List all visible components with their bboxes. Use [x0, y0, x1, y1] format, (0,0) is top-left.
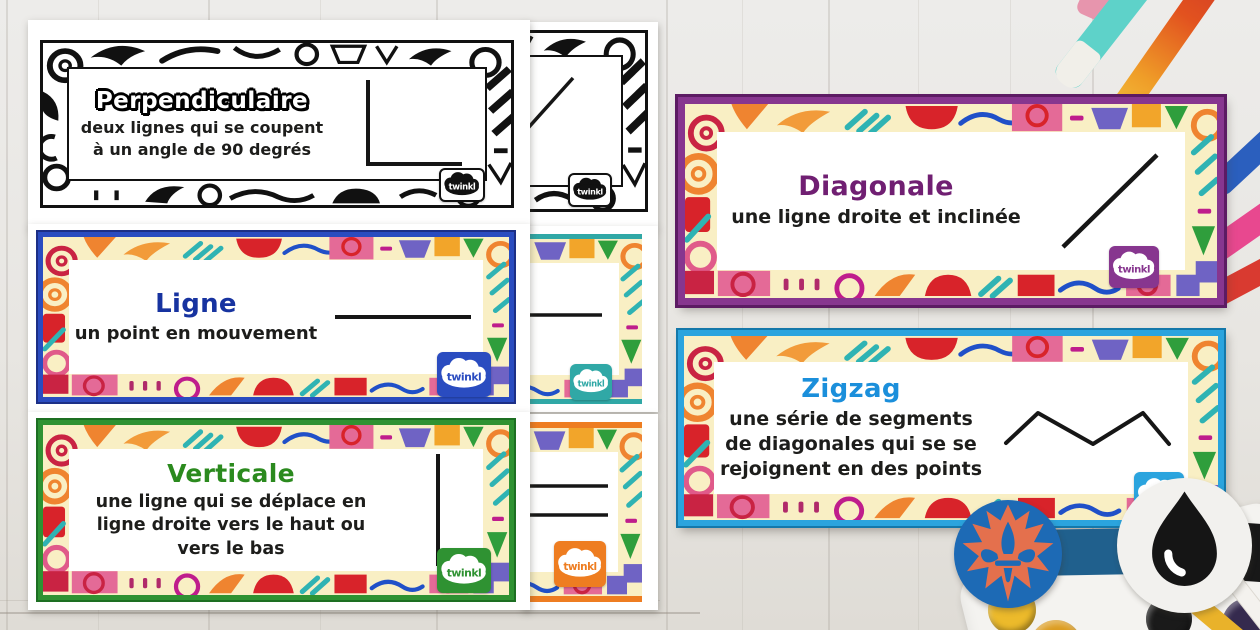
twinkl-logo-badge: twinkl — [437, 548, 491, 593]
svg-text:twinkl: twinkl — [577, 188, 603, 197]
partial-card-teal: twinkl — [530, 234, 642, 404]
card-description: un point en mouvement — [75, 322, 318, 346]
wood-grain-line — [918, 0, 919, 630]
twinkl-logo-badge: twinkl — [570, 364, 612, 400]
twinkl-logo-badge: twinkl — [439, 168, 485, 202]
shape-column — [323, 313, 483, 321]
zigzag-line-icon — [1001, 406, 1176, 450]
pen-cap — [1051, 38, 1103, 93]
shape-column — [988, 406, 1188, 450]
card-diagonale: Diagonale une ligne droite et inclinée t… — [678, 97, 1224, 305]
twinkl-logo-badge: twinkl — [1109, 246, 1159, 288]
card-perpendiculaire: Perpendiculaire deux lignes qui se coupe… — [40, 40, 514, 208]
twinkl-logo-badge: twinkl — [554, 541, 606, 587]
card-title: Diagonale — [798, 171, 953, 202]
ink-drop-icon — [1117, 478, 1252, 613]
card-ligne: Ligne un point en mouvement twinkl — [38, 232, 514, 402]
card-title: Ligne — [155, 289, 237, 319]
resource-preview: twinkl twinkl twinkl — [0, 0, 1260, 630]
svg-text:twinkl: twinkl — [1118, 265, 1150, 276]
card-text: Perpendiculaire deux lignes qui se coupe… — [69, 88, 335, 159]
maple-leaf-badge — [954, 500, 1062, 608]
card-inner: Ligne un point en mouvement — [69, 260, 483, 374]
card-description: une série de segmentsde diagonales qui s… — [720, 407, 982, 482]
maple-leaf-icon — [954, 500, 1062, 608]
diagonal-line-icon — [1055, 147, 1165, 255]
shape-column — [335, 76, 485, 172]
wood-plank-gap — [0, 612, 700, 614]
svg-text:twinkl: twinkl — [447, 371, 482, 384]
partial-card-orange: twinkl — [530, 422, 642, 602]
twinkl-logo-badge: twinkl — [437, 352, 491, 397]
card-text: Zigzag une série de segmentsde diagonale… — [714, 374, 988, 482]
card-text: Verticale une ligne qui se déplace enlig… — [69, 459, 393, 560]
svg-text:twinkl: twinkl — [449, 182, 476, 192]
card-title: Zigzag — [801, 374, 900, 404]
svg-text:twinkl: twinkl — [563, 561, 596, 573]
wood-grain-line — [6, 0, 8, 630]
card-inner: Zigzag une série de segmentsde diagonale… — [714, 362, 1188, 494]
wood-grain-line — [742, 0, 743, 630]
card-description: une ligne qui se déplace enligne droite … — [96, 491, 367, 560]
card-text: Diagonale une ligne droite et inclinée — [717, 171, 1035, 230]
card-verticale: Verticale une ligne qui se déplace enlig… — [38, 420, 514, 600]
right-angle-icon — [350, 76, 470, 172]
wood-grain-line — [828, 0, 830, 630]
svg-text:twinkl: twinkl — [447, 567, 482, 580]
card-inner: Perpendiculaire deux lignes qui se coupe… — [67, 67, 487, 181]
shape-column — [1035, 147, 1185, 255]
card-title: Verticale — [167, 459, 295, 488]
card-description: deux lignes qui se coupentà un angle de … — [81, 117, 323, 159]
wood-grain-line — [666, 0, 668, 630]
svg-text:twinkl: twinkl — [578, 379, 605, 389]
partial-card-black-white: twinkl — [530, 30, 648, 212]
card-text: Ligne un point en mouvement — [69, 289, 323, 346]
card-description: une ligne droite et inclinée — [731, 205, 1021, 230]
twinkl-logo-badge: twinkl — [568, 173, 612, 207]
card-inner: Verticale une ligne qui se déplace enlig… — [69, 449, 483, 571]
card-title: Perpendiculaire — [96, 88, 308, 114]
ink-drop-badge — [1117, 478, 1252, 613]
horizontal-line-icon — [333, 313, 473, 321]
